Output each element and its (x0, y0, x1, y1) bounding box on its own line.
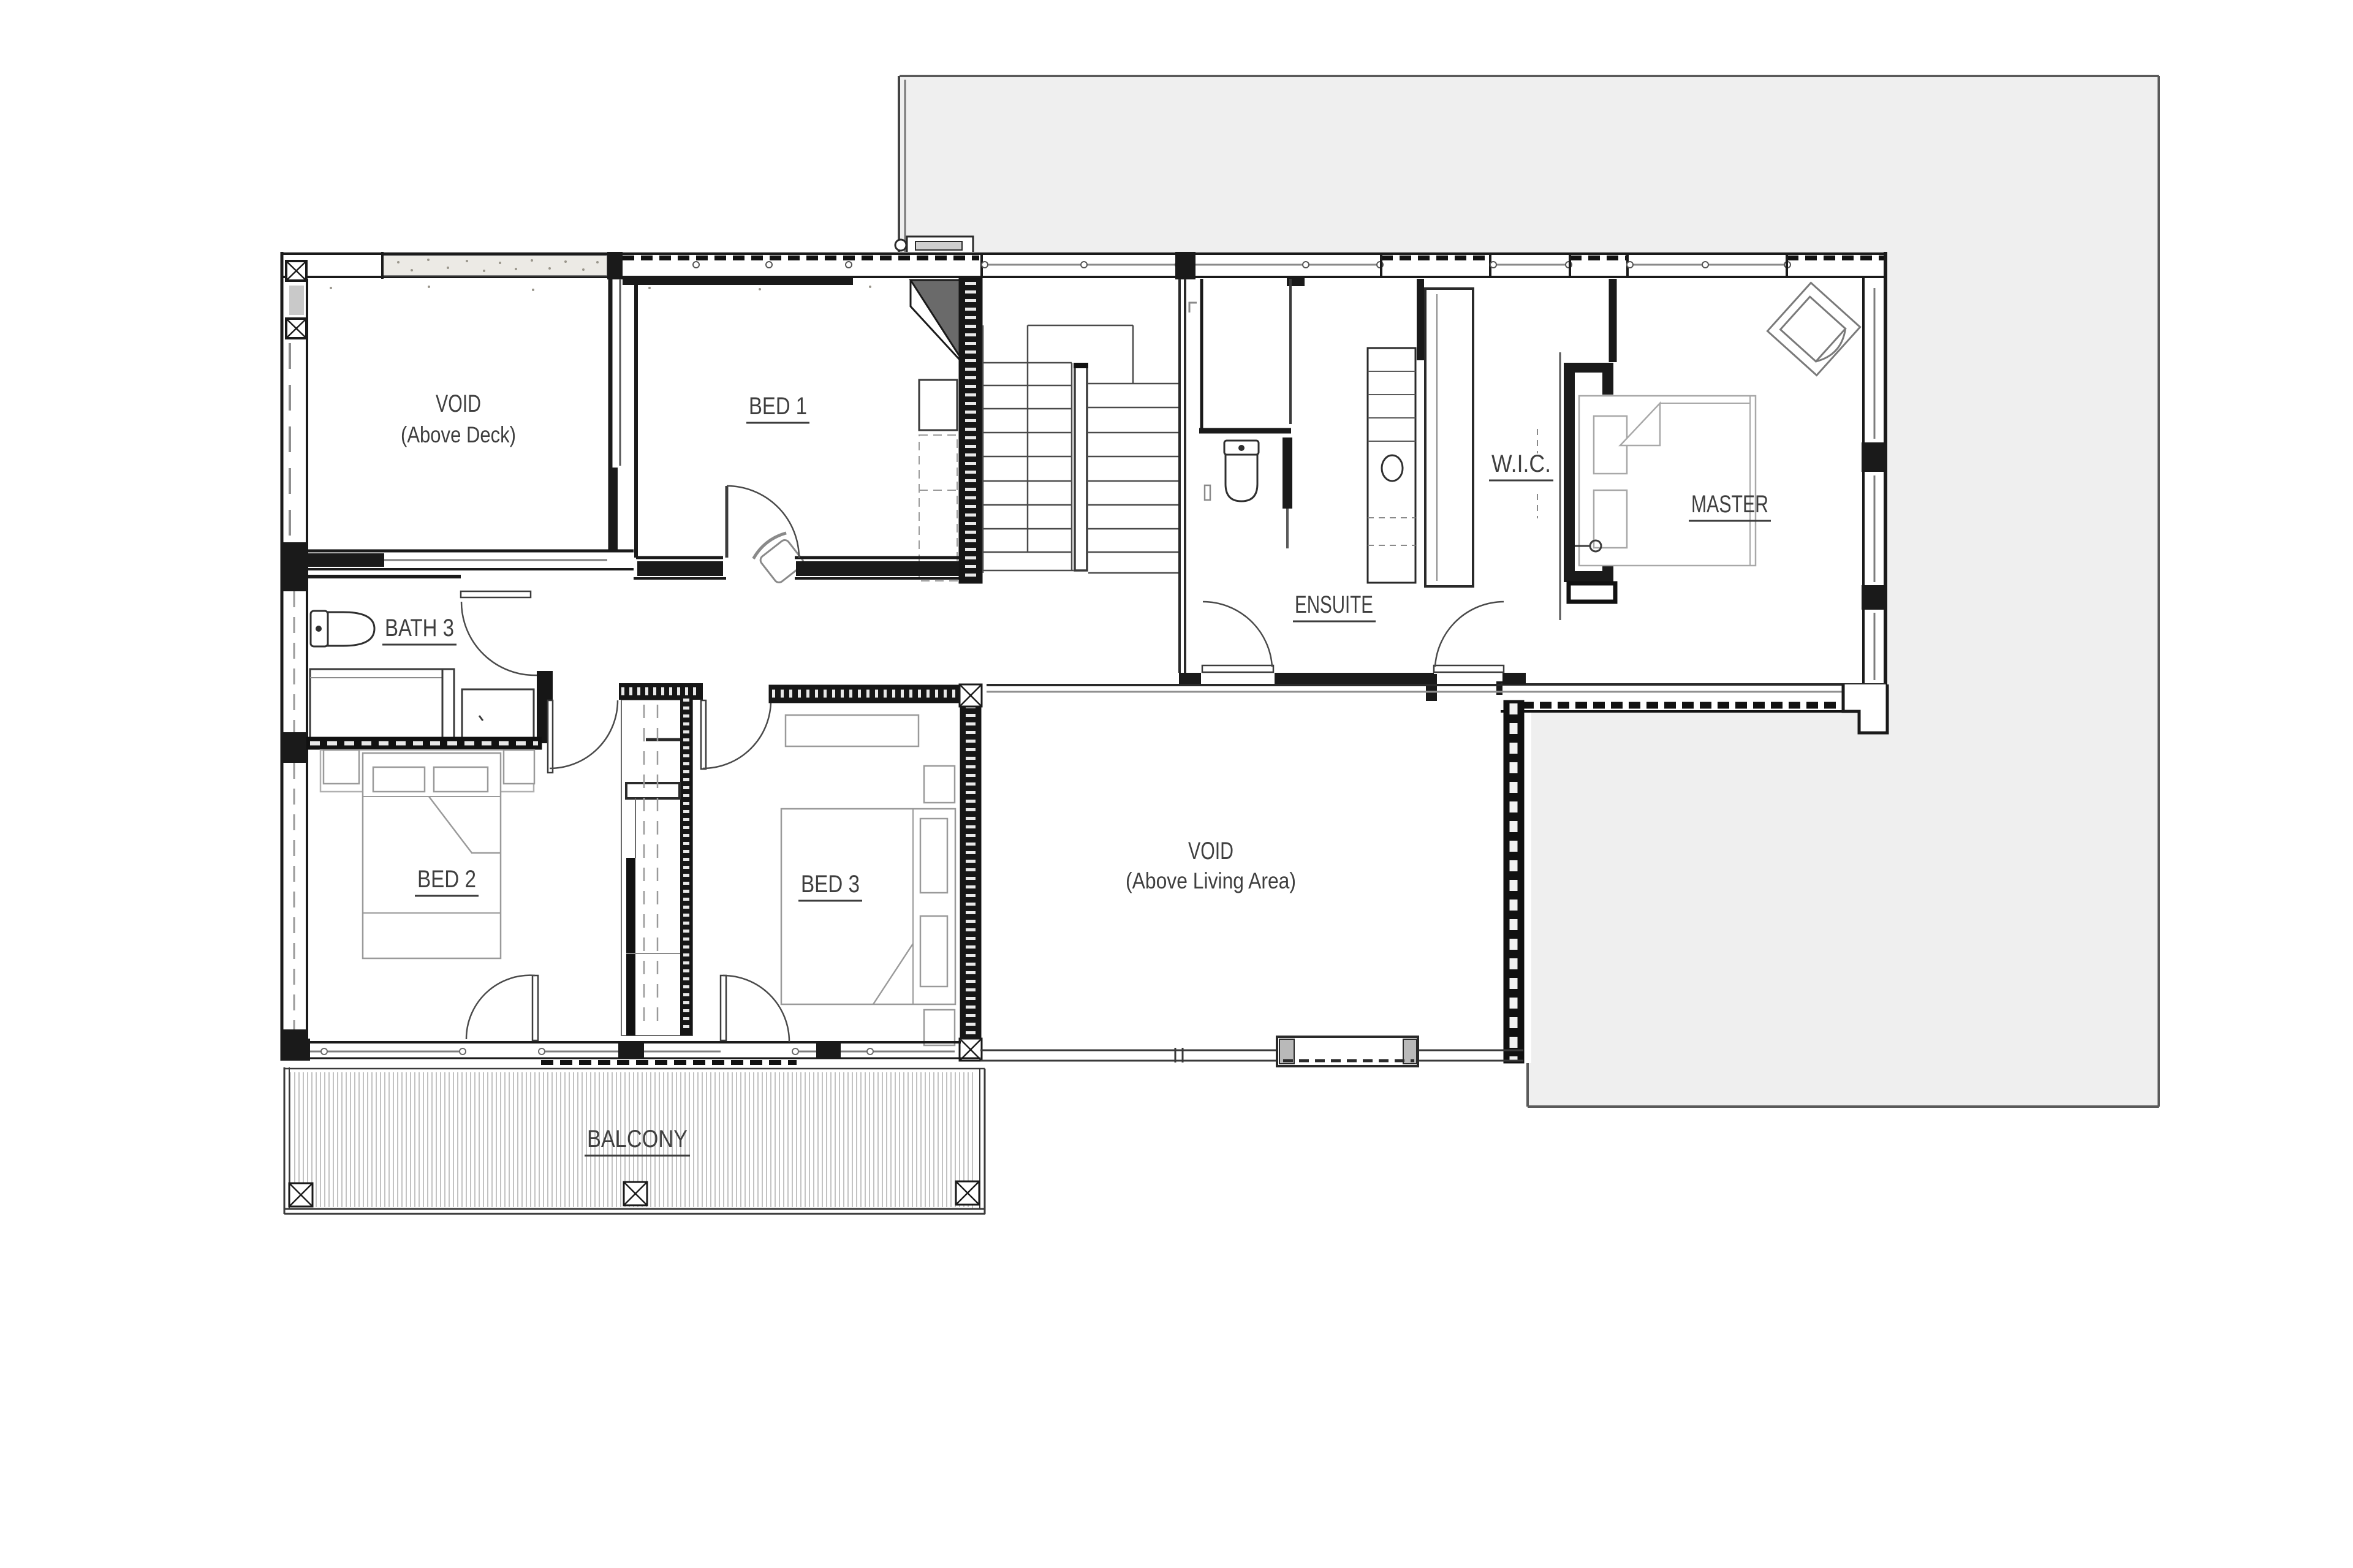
svg-text:W.I.C.: W.I.C. (1491, 450, 1551, 477)
svg-text:BATH 3: BATH 3 (385, 615, 454, 642)
svg-text:VOID: VOID (1188, 838, 1233, 865)
svg-text:ENSUITE: ENSUITE (1295, 591, 1373, 618)
svg-text:MASTER: MASTER (1691, 491, 1768, 518)
svg-text:(Above Deck): (Above Deck) (401, 422, 516, 447)
svg-text:(Above Living Area): (Above Living Area) (1126, 868, 1296, 893)
svg-text:VOID: VOID (436, 390, 481, 417)
svg-text:BED 1: BED 1 (749, 393, 807, 420)
svg-text:BED 2: BED 2 (417, 866, 476, 893)
svg-text:BALCONY: BALCONY (587, 1126, 688, 1153)
svg-text:BED 3: BED 3 (801, 871, 860, 898)
